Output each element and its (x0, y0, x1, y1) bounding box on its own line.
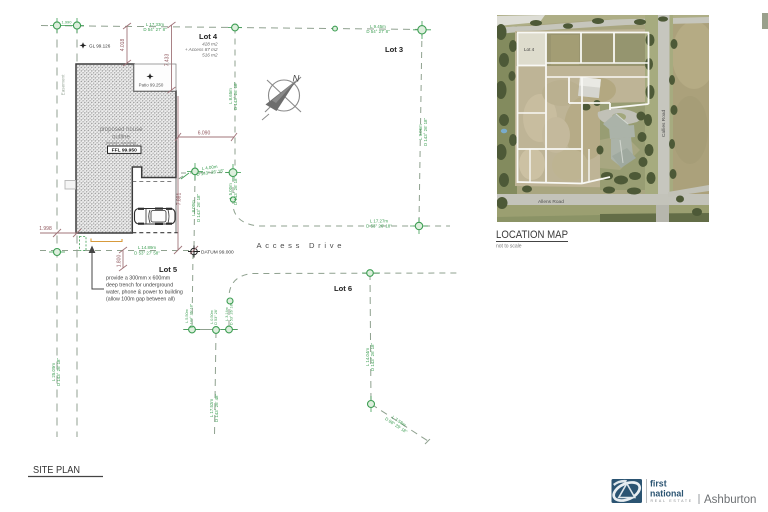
svg-text:Easement: Easement (61, 74, 66, 95)
svg-text:4.018: 4.018 (120, 39, 126, 52)
svg-text:water, phone & power to buildi: water, phone & power to building (106, 290, 183, 296)
svg-text:Lot 6: Lot 6 (334, 284, 352, 293)
svg-text:Callies Road: Callies Road (661, 109, 667, 137)
svg-text:1.800: 1.800 (117, 255, 123, 268)
svg-text:D 143° 26' 18": D 143° 26' 18" (56, 358, 61, 387)
svg-text:provide a 300mm x 600mm: provide a 300mm x 600mm (106, 276, 171, 282)
svg-text:L 14.89m: L 14.89m (138, 245, 156, 250)
svg-text:Lot 5: Lot 5 (159, 265, 178, 274)
svg-text:428 m2: 428 m2 (202, 42, 218, 47)
svg-text:D 143° 26' 18": D 143° 26' 18" (233, 82, 238, 111)
svg-text:+ Access 87 m2: + Access 87 m2 (185, 47, 218, 52)
svg-text:proposed house: proposed house (99, 127, 143, 133)
svg-text:Allens Road: Allens Road (538, 199, 564, 205)
svg-text:L 3.14m: L 3.14m (225, 307, 229, 321)
svg-text:Access Drive: Access Drive (257, 241, 346, 250)
svg-text:D 53° 26' 18": D 53° 26' 18" (366, 224, 392, 229)
svg-text:7.433: 7.433 (165, 54, 171, 67)
svg-text:7.881: 7.881 (177, 193, 183, 206)
svg-text:L 5.50m: L 5.50m (185, 309, 189, 323)
svg-text:D 143° 26' 18": D 143° 26' 18" (370, 343, 375, 372)
svg-text:6.090: 6.090 (198, 131, 211, 137)
svg-text:D 54° 27' 8": D 54° 27' 8" (143, 27, 167, 32)
svg-text:1.998: 1.998 (39, 226, 52, 232)
svg-text:N: N (293, 74, 300, 85)
svg-text:Lot 4: Lot 4 (199, 32, 218, 41)
svg-text:not to scale: not to scale (496, 244, 522, 250)
svg-text:LOCATION MAP: LOCATION MAP (496, 229, 568, 241)
svg-text:D 53° 26': D 53° 26' (214, 309, 218, 325)
svg-text:Lot 4: Lot 4 (524, 47, 535, 52)
svg-text:D 143° 26' 48": D 143° 26' 48" (214, 394, 219, 423)
svg-text:D 53° 26' 18": D 53° 26' 18" (230, 302, 234, 325)
svg-text:first: first (650, 479, 667, 489)
svg-text:REAL ESTATE: REAL ESTATE (651, 499, 693, 503)
svg-text:SITE PLAN: SITE PLAN (33, 464, 80, 476)
svg-text:Ashburton: Ashburton (704, 494, 756, 506)
svg-text:Lot 3: Lot 3 (385, 45, 403, 54)
svg-text:D 53° 27' 58": D 53° 27' 58" (134, 251, 160, 256)
svg-text:GL 99.126: GL 99.126 (89, 43, 111, 48)
svg-text:DATUM 99.000: DATUM 99.000 (201, 250, 234, 256)
svg-text:(include cladding): (include cladding) (106, 140, 137, 145)
svg-text:deep trench for underground: deep trench for underground (106, 283, 173, 289)
svg-text:(allow 100m gap between all): (allow 100m gap between all) (106, 297, 175, 303)
svg-text:D 143° 26' 18": D 143° 26' 18" (233, 177, 238, 206)
svg-text:FFL 99.950: FFL 99.950 (112, 148, 137, 154)
svg-text:national: national (650, 489, 684, 499)
svg-text:1.990: 1.990 (61, 20, 72, 25)
svg-text:D 144° 26' 18": D 144° 26' 18" (190, 303, 194, 328)
svg-text:D 54° 27' 8": D 54° 27' 8" (366, 29, 390, 34)
svg-text:516 m2: 516 m2 (202, 53, 218, 58)
svg-text:D 143° 26' 18": D 143° 26' 18" (423, 118, 428, 147)
svg-text:Patio 99.250: Patio 99.250 (139, 83, 164, 88)
svg-text:D 143° 26' 18": D 143° 26' 18" (196, 194, 201, 223)
